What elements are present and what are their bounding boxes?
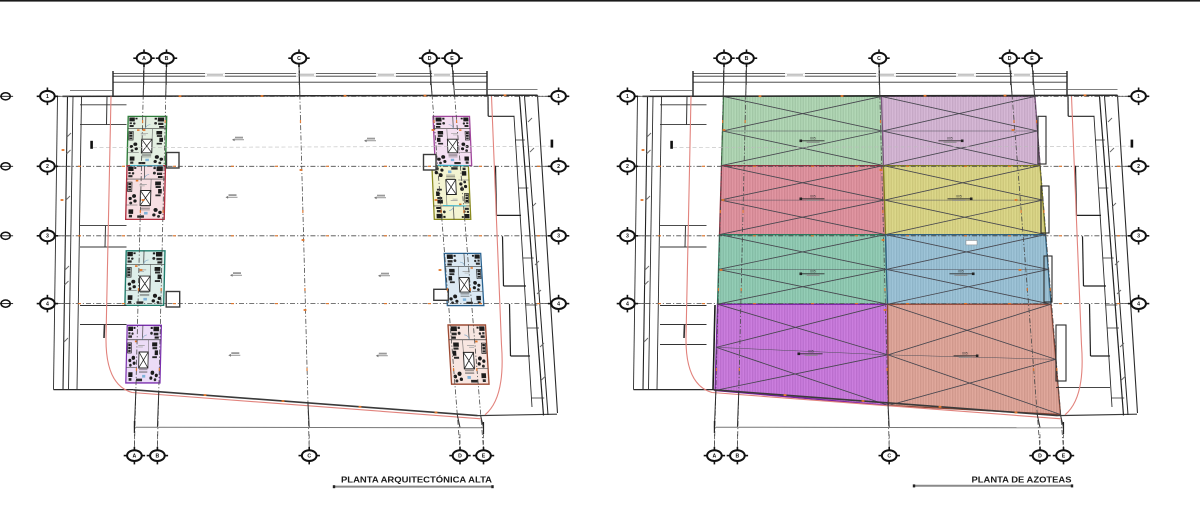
svg-text:D: D (458, 453, 462, 459)
svg-text:1: 1 (557, 94, 560, 100)
svg-text:E: E (450, 56, 454, 62)
svg-text:2: 2 (626, 164, 629, 170)
svg-text:PLANTA DE AZOTEAS: PLANTA DE AZOTEAS (972, 475, 1072, 485)
svg-text:D: D (428, 56, 432, 62)
svg-text:005: 005 (958, 270, 964, 274)
svg-text:4: 4 (1137, 301, 1140, 307)
svg-text:C: C (877, 56, 881, 62)
svg-text:E: E (1030, 56, 1034, 62)
svg-text:1: 1 (626, 94, 629, 100)
svg-text:E: E (482, 453, 486, 459)
svg-text:005: 005 (947, 137, 953, 141)
svg-text:4: 4 (626, 301, 629, 307)
svg-text:C: C (307, 453, 311, 459)
svg-text:005: 005 (956, 195, 962, 199)
svg-text:2: 2 (46, 164, 49, 170)
svg-text:B: B (745, 56, 749, 62)
svg-text:C: C (297, 56, 301, 62)
svg-text:D: D (1038, 453, 1042, 459)
svg-text:B: B (736, 453, 740, 459)
svg-text:3: 3 (1137, 234, 1140, 240)
svg-text:1: 1 (46, 94, 49, 100)
svg-text:C: C (887, 453, 891, 459)
svg-text:2: 2 (1137, 164, 1140, 170)
svg-text:E: E (1062, 453, 1066, 459)
svg-text:005: 005 (808, 350, 814, 354)
svg-text:A: A (713, 453, 717, 459)
svg-text:B: B (165, 56, 169, 62)
svg-text:005: 005 (810, 270, 816, 274)
svg-text:4: 4 (46, 301, 49, 307)
svg-text:4: 4 (557, 301, 560, 307)
svg-text:3: 3 (557, 234, 560, 240)
svg-text:3: 3 (626, 234, 629, 240)
svg-text:005: 005 (810, 195, 816, 199)
svg-text:2: 2 (557, 164, 560, 170)
svg-text:005: 005 (962, 352, 968, 356)
svg-text:B: B (156, 453, 160, 459)
svg-text:A: A (142, 56, 146, 62)
svg-text:3: 3 (46, 234, 49, 240)
svg-text:A: A (133, 453, 137, 459)
svg-text:PLANTA ARQUITECTÓNICA ALTA: PLANTA ARQUITECTÓNICA ALTA (341, 474, 492, 485)
svg-text:1: 1 (1137, 94, 1140, 100)
svg-text:D: D (1008, 56, 1012, 62)
svg-text:A: A (722, 56, 726, 62)
svg-text:005: 005 (810, 137, 816, 141)
